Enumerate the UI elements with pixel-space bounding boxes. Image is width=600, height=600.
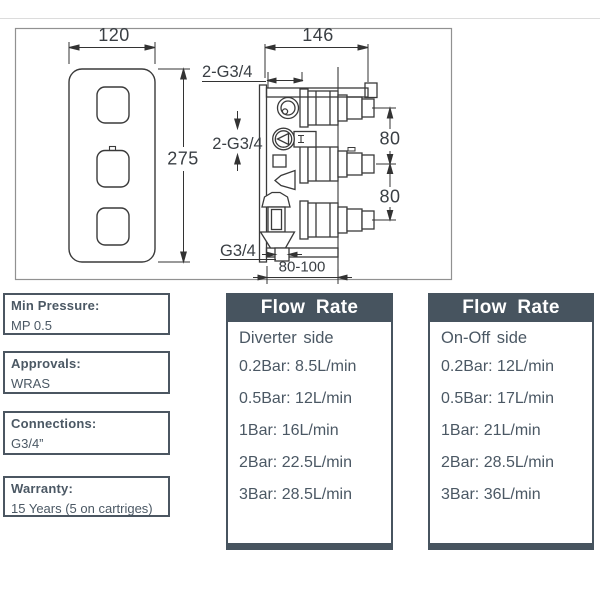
flow-rate-subtitle: Diverter side bbox=[239, 329, 391, 348]
flow-rate-row: 0.2Bar: 8.5L/min bbox=[239, 358, 391, 376]
flow-rate-row: 0.5Bar: 17L/min bbox=[441, 390, 592, 408]
flow-value: 12L/min bbox=[497, 358, 554, 375]
cartridge-bump bbox=[348, 148, 355, 152]
flow-value: 36L/min bbox=[484, 486, 541, 503]
flow-rate-row: 1Bar: 16L/min bbox=[239, 422, 391, 440]
flow-rate-table-onoff: Flow Rate On-Off side 0.2Bar: 12L/min 0.… bbox=[428, 293, 594, 550]
flow-value: 22.5L/min bbox=[282, 454, 352, 471]
spec-value: WRAS bbox=[11, 376, 162, 391]
knob-top bbox=[97, 87, 129, 123]
front-width-dim: 120 bbox=[98, 25, 130, 45]
spec-label: Warranty: bbox=[11, 481, 162, 496]
spec-box-approvals: Approvals: WRAS bbox=[3, 351, 170, 394]
knob-middle bbox=[97, 151, 129, 188]
flow-value: 16L/min bbox=[282, 422, 339, 439]
flow-value: 28.5L/min bbox=[484, 454, 554, 471]
spec-label: Approvals: bbox=[11, 356, 162, 371]
pressure-label: 2Bar: bbox=[239, 454, 277, 471]
flow-value: 28.5L/min bbox=[282, 486, 352, 503]
port-spacing-upper-dim: 80 bbox=[379, 129, 400, 149]
flow-value: 8.5L/min bbox=[295, 358, 356, 375]
flow-rate-header: Flow Rate bbox=[430, 293, 592, 322]
spec-box-min-pressure: Min Pressure: MP 0.5 bbox=[3, 293, 170, 335]
spec-label: Connections: bbox=[11, 416, 162, 431]
spec-label: Min Pressure: bbox=[11, 298, 162, 313]
side-width-dim: 146 bbox=[302, 25, 334, 45]
pressure-label: 2Bar: bbox=[441, 454, 479, 471]
technical-drawing: 120 275 146 2-G3/4 2-G3/4 G3/4 80 80 80-… bbox=[0, 0, 600, 300]
pressure-label: 1Bar: bbox=[441, 422, 479, 439]
flow-value: 12L/min bbox=[295, 390, 352, 407]
pressure-label: 0.2Bar: bbox=[239, 358, 291, 375]
pressure-label: 3Bar: bbox=[239, 486, 277, 503]
flow-rate-body: Diverter side 0.2Bar: 8.5L/min 0.5Bar: 1… bbox=[228, 322, 391, 504]
flow-rate-row: 0.5Bar: 12L/min bbox=[239, 390, 391, 408]
front-view bbox=[69, 69, 155, 262]
spec-value: MP 0.5 bbox=[11, 318, 162, 333]
flow-rate-row: 0.2Bar: 12L/min bbox=[441, 358, 592, 376]
pressure-label: 3Bar: bbox=[441, 486, 479, 503]
spec-box-warranty: Warranty: 15 Years (5 on cartriges) bbox=[3, 476, 170, 517]
flow-rate-row: 2Bar: 22.5L/min bbox=[239, 454, 391, 472]
pressure-label: 0.5Bar: bbox=[239, 390, 291, 407]
outlet-connection-label: G3/4 bbox=[220, 242, 256, 260]
flow-rate-row: 3Bar: 36L/min bbox=[441, 486, 592, 504]
pressure-label: 0.5Bar: bbox=[441, 390, 493, 407]
knob-bottom bbox=[97, 208, 129, 245]
pressure-label: 1Bar: bbox=[239, 422, 277, 439]
spec-box-connections: Connections: G3/4” bbox=[3, 411, 170, 455]
flow-rate-row: 1Bar: 21L/min bbox=[441, 422, 592, 440]
flow-rate-header: Flow Rate bbox=[228, 293, 391, 322]
flow-rate-table-diverter: Flow Rate Diverter side 0.2Bar: 8.5L/min… bbox=[226, 293, 393, 550]
flow-value: 21L/min bbox=[484, 422, 541, 439]
flow-rate-row: 3Bar: 28.5L/min bbox=[239, 486, 391, 504]
flow-rate-subtitle: On-Off side bbox=[441, 329, 592, 348]
port-spacing-lower-dim: 80 bbox=[379, 187, 400, 207]
inlet-connection-label: 2-G3/4 bbox=[212, 135, 262, 153]
flow-rate-body: On-Off side 0.2Bar: 12L/min 0.5Bar: 17L/… bbox=[430, 322, 592, 504]
depth-range-dim: 80-100 bbox=[279, 259, 326, 276]
spec-value: G3/4” bbox=[11, 436, 162, 451]
flow-value: 17L/min bbox=[497, 390, 554, 407]
spec-value: 15 Years (5 on cartriges) bbox=[11, 501, 162, 516]
flow-rate-row: 2Bar: 28.5L/min bbox=[441, 454, 592, 472]
pressure-label: 0.2Bar: bbox=[441, 358, 493, 375]
front-height-dim: 275 bbox=[167, 149, 199, 169]
spec-sheet: { "drawing": { "front_view": { "width": … bbox=[0, 0, 600, 600]
top-connection-label: 2-G3/4 bbox=[202, 63, 252, 81]
